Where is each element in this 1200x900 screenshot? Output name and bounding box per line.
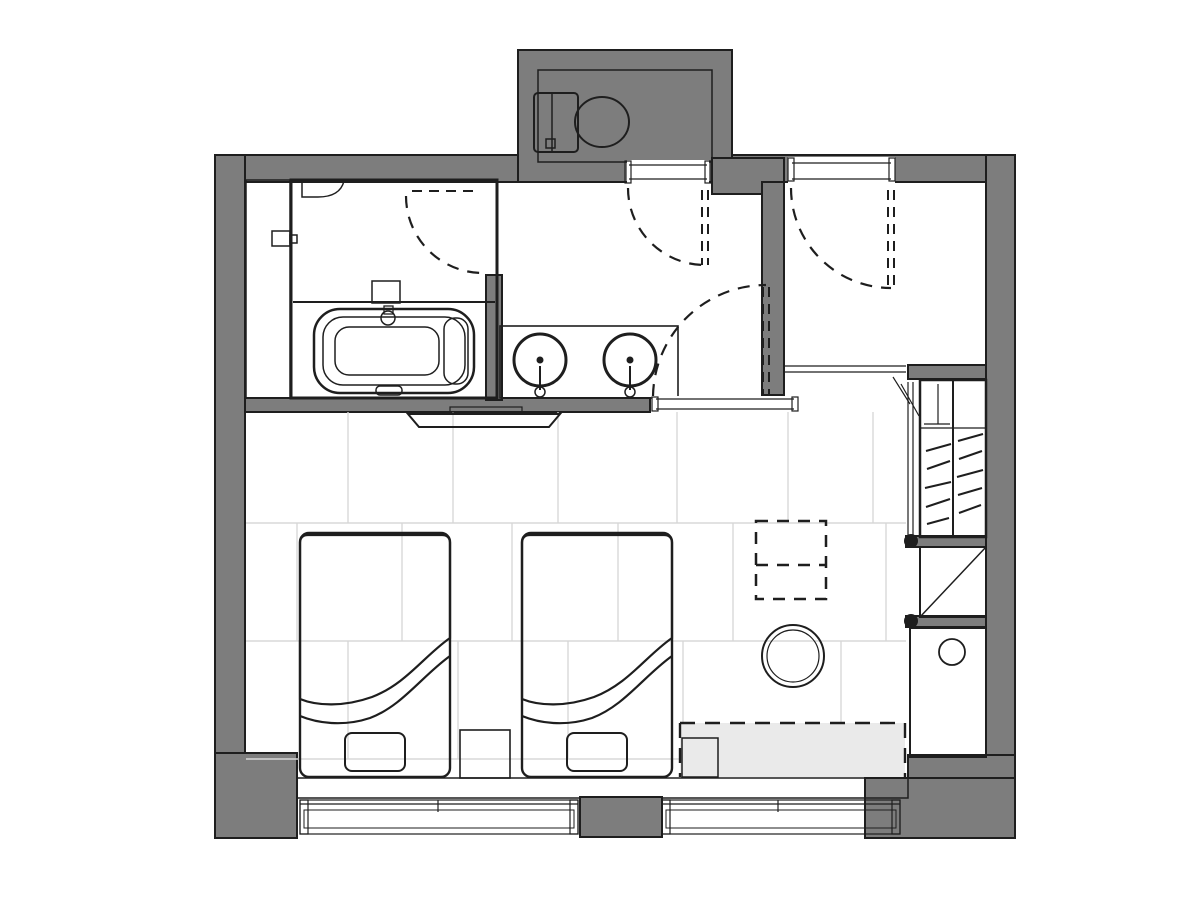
- wall-stub-cap-b: [904, 614, 918, 628]
- twin-bed-left: [300, 533, 450, 777]
- closet-top-wall: [908, 365, 986, 379]
- floor-plan-canvas: [0, 0, 1200, 900]
- bottom-right-wall-band: [865, 778, 1015, 838]
- entry-partition-wall: [762, 182, 784, 395]
- entry-door-swing: [791, 188, 894, 291]
- window-bench-dashed: [680, 723, 905, 777]
- nightstand: [460, 730, 510, 778]
- entry-door-threshold: [788, 157, 895, 184]
- round-table: [762, 625, 824, 687]
- floor-plan-drawing: [0, 0, 1200, 900]
- bathroom-door-swing: [406, 191, 483, 273]
- luggage-rack: [920, 547, 986, 617]
- window-pillar: [580, 797, 662, 837]
- bedroom: [246, 407, 906, 778]
- vanity-door-swing: [653, 285, 769, 396]
- vanity-washroom: [500, 285, 798, 412]
- sink-right: [604, 334, 656, 397]
- window-sill-band: [297, 778, 908, 798]
- window-wall: [297, 778, 908, 837]
- bathroom-unit: [246, 180, 497, 398]
- toilet-door-swing: [628, 188, 708, 265]
- kitchenette-counter: [910, 628, 986, 757]
- vanity-exit-threshold: [652, 396, 798, 412]
- left-wall: [215, 155, 245, 838]
- toilet-door-threshold: [625, 160, 711, 186]
- sink-left: [514, 334, 566, 397]
- floor-grid: [246, 412, 906, 759]
- overhead-cabinet-dashed: [756, 521, 826, 599]
- window-left: [300, 800, 578, 834]
- twin-bed-right: [522, 533, 672, 777]
- tv-wall: [245, 398, 650, 412]
- bathroom-floor: [291, 180, 497, 398]
- wall-stub-cap-a: [904, 534, 918, 548]
- bathtub: [314, 306, 474, 395]
- shower-control: [272, 231, 297, 246]
- bottom-left-wall-block: [215, 753, 297, 838]
- tub-faucet: [381, 311, 395, 325]
- service-shaft: [246, 180, 290, 398]
- corner-shelf: [302, 181, 344, 197]
- closet-fold-mark-b: [901, 384, 919, 416]
- counter-sink: [939, 639, 965, 665]
- tub-step-shelf: [372, 281, 400, 303]
- entry-hall: [784, 157, 906, 372]
- right-wall: [986, 155, 1015, 838]
- closet-column: [893, 377, 986, 757]
